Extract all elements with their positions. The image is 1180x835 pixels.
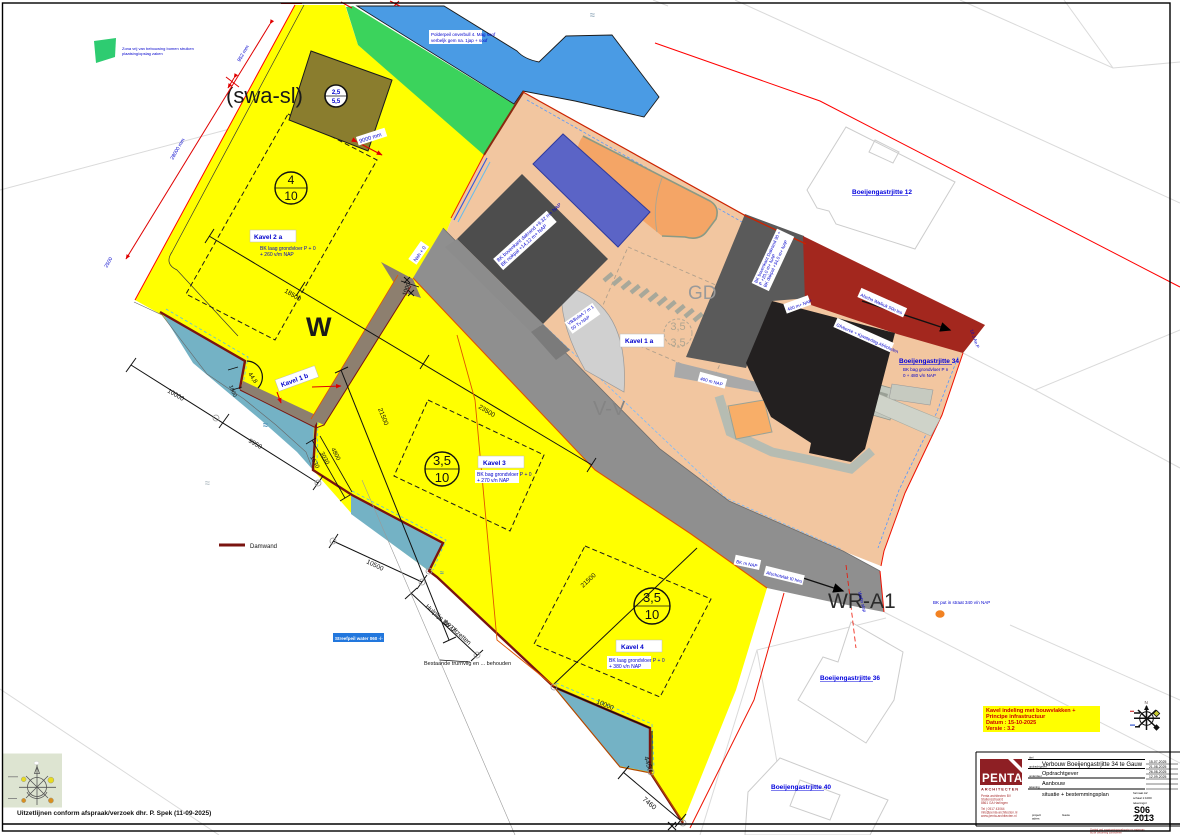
svg-text:situatie + bestemmingsplan: situatie + bestemmingsplan (1042, 792, 1109, 798)
svg-text:≈: ≈ (263, 420, 268, 430)
svg-text:www.penta-architecten.nl: www.penta-architecten.nl (981, 814, 1017, 818)
svg-text:BK put in straat 340 v/n NAP: BK put in straat 340 v/n NAP (933, 600, 990, 605)
svg-text:titel: titel (1029, 756, 1034, 760)
svg-text:plaatsing/opslag zaken: plaatsing/opslag zaken (122, 51, 163, 56)
svg-text:schaal 1:1000: schaal 1:1000 (1133, 796, 1152, 800)
svg-text:Kavel 4: Kavel 4 (621, 644, 644, 651)
svg-text:+ 260 v/m NAP: + 260 v/m NAP (260, 252, 294, 258)
svg-text:BK bag grondvloer P n: BK bag grondvloer P n (903, 367, 949, 372)
svg-text:Kavel 1 a: Kavel 1 a (625, 338, 654, 345)
svg-text:3,5: 3,5 (670, 337, 685, 349)
svg-text:15-07-2025: 15-07-2025 (1149, 760, 1166, 764)
svg-text:Aanbouw: Aanbouw (1042, 781, 1065, 787)
svg-text:≈: ≈ (440, 570, 444, 577)
svg-text:5,5: 5,5 (332, 99, 341, 105)
svg-text:Streefpeil water 060 -/- NAP: Streefpeil water 060 -/- NAP (335, 636, 394, 641)
svg-text:verbeljk gem na. 1jap + soof: verbeljk gem na. 1jap + soof (431, 38, 488, 43)
svg-text:Versie : 3.2: Versie : 3.2 (986, 726, 1015, 732)
svg-text:8861 GA Harlingen: 8861 GA Harlingen (981, 801, 1008, 805)
svg-text:GD: GD (688, 283, 717, 304)
svg-text:Gauw: Gauw (1062, 813, 1071, 817)
svg-text:Opdrachtgever: Opdrachtgever (1042, 771, 1079, 777)
svg-text:ARCHITECTEN: ARCHITECTEN (981, 787, 1019, 792)
svg-text:+ 380 v/n NAP: + 380 v/n NAP (609, 664, 642, 670)
svg-text:adres: adres (1032, 817, 1040, 821)
svg-text:formaat A2: formaat A2 (1133, 791, 1148, 795)
svg-text:(swa-sl): (swa-sl) (226, 83, 303, 108)
svg-text:0 + 480 v/n NAP: 0 + 480 v/n NAP (903, 373, 936, 378)
svg-text:V-V: V-V (593, 398, 626, 420)
svg-text:Boeijengastrjitte 34: Boeijengastrjitte 34 (899, 358, 959, 365)
svg-text:2013: 2013 (1134, 813, 1154, 823)
svg-text:4: 4 (288, 173, 295, 187)
svg-text:12-09-2025: 12-09-2025 (1149, 775, 1166, 779)
svg-text:+ 270 v/n NAP: + 270 v/n NAP (477, 478, 510, 484)
svg-text:≈: ≈ (205, 478, 210, 488)
svg-text:3,5: 3,5 (670, 321, 685, 333)
svg-text:tekening: tekening (1029, 785, 1040, 789)
svg-text:Polderpeil onverbull 4. Mag so: Polderpeil onverbull 4. Mag soof (431, 32, 496, 37)
svg-text:Boeijengastrjitte 12: Boeijengastrjitte 12 (852, 189, 912, 196)
svg-text:26-08-2025: 26-08-2025 (1149, 770, 1166, 774)
svg-text:10: 10 (284, 189, 298, 203)
svg-text:N: N (1145, 700, 1148, 705)
svg-text:3,5: 3,5 (433, 453, 451, 468)
svg-text:PENTA: PENTA (982, 773, 1023, 785)
svg-text:10: 10 (435, 470, 449, 485)
svg-text:onderdeel: onderdeel (1029, 774, 1042, 778)
svg-text:≈: ≈ (590, 10, 595, 20)
svg-text:Kavel 3: Kavel 3 (483, 460, 506, 467)
svg-text:Uitzetlijnen conform afspraak/: Uitzetlijnen conform afspraak/verzoek dh… (17, 810, 211, 817)
svg-text:2,5: 2,5 (332, 90, 341, 96)
svg-text:Boeijengastrjitte 40: Boeijengastrjitte 40 (771, 784, 831, 791)
svg-text:Verbouw Boeijengastrjitte 34 t: Verbouw Boeijengastrjitte 34 te Gauw (1042, 762, 1143, 768)
svg-text:W: W (306, 312, 332, 342)
svg-text:Boeijengastrjitte 36: Boeijengastrjitte 36 (820, 675, 880, 682)
svg-text:Damwand: Damwand (250, 544, 277, 550)
svg-text:21-08-2025: 21-08-2025 (1149, 765, 1166, 769)
svg-text:10: 10 (645, 607, 659, 622)
svg-text:Kavel 2 a: Kavel 2 a (254, 234, 283, 241)
